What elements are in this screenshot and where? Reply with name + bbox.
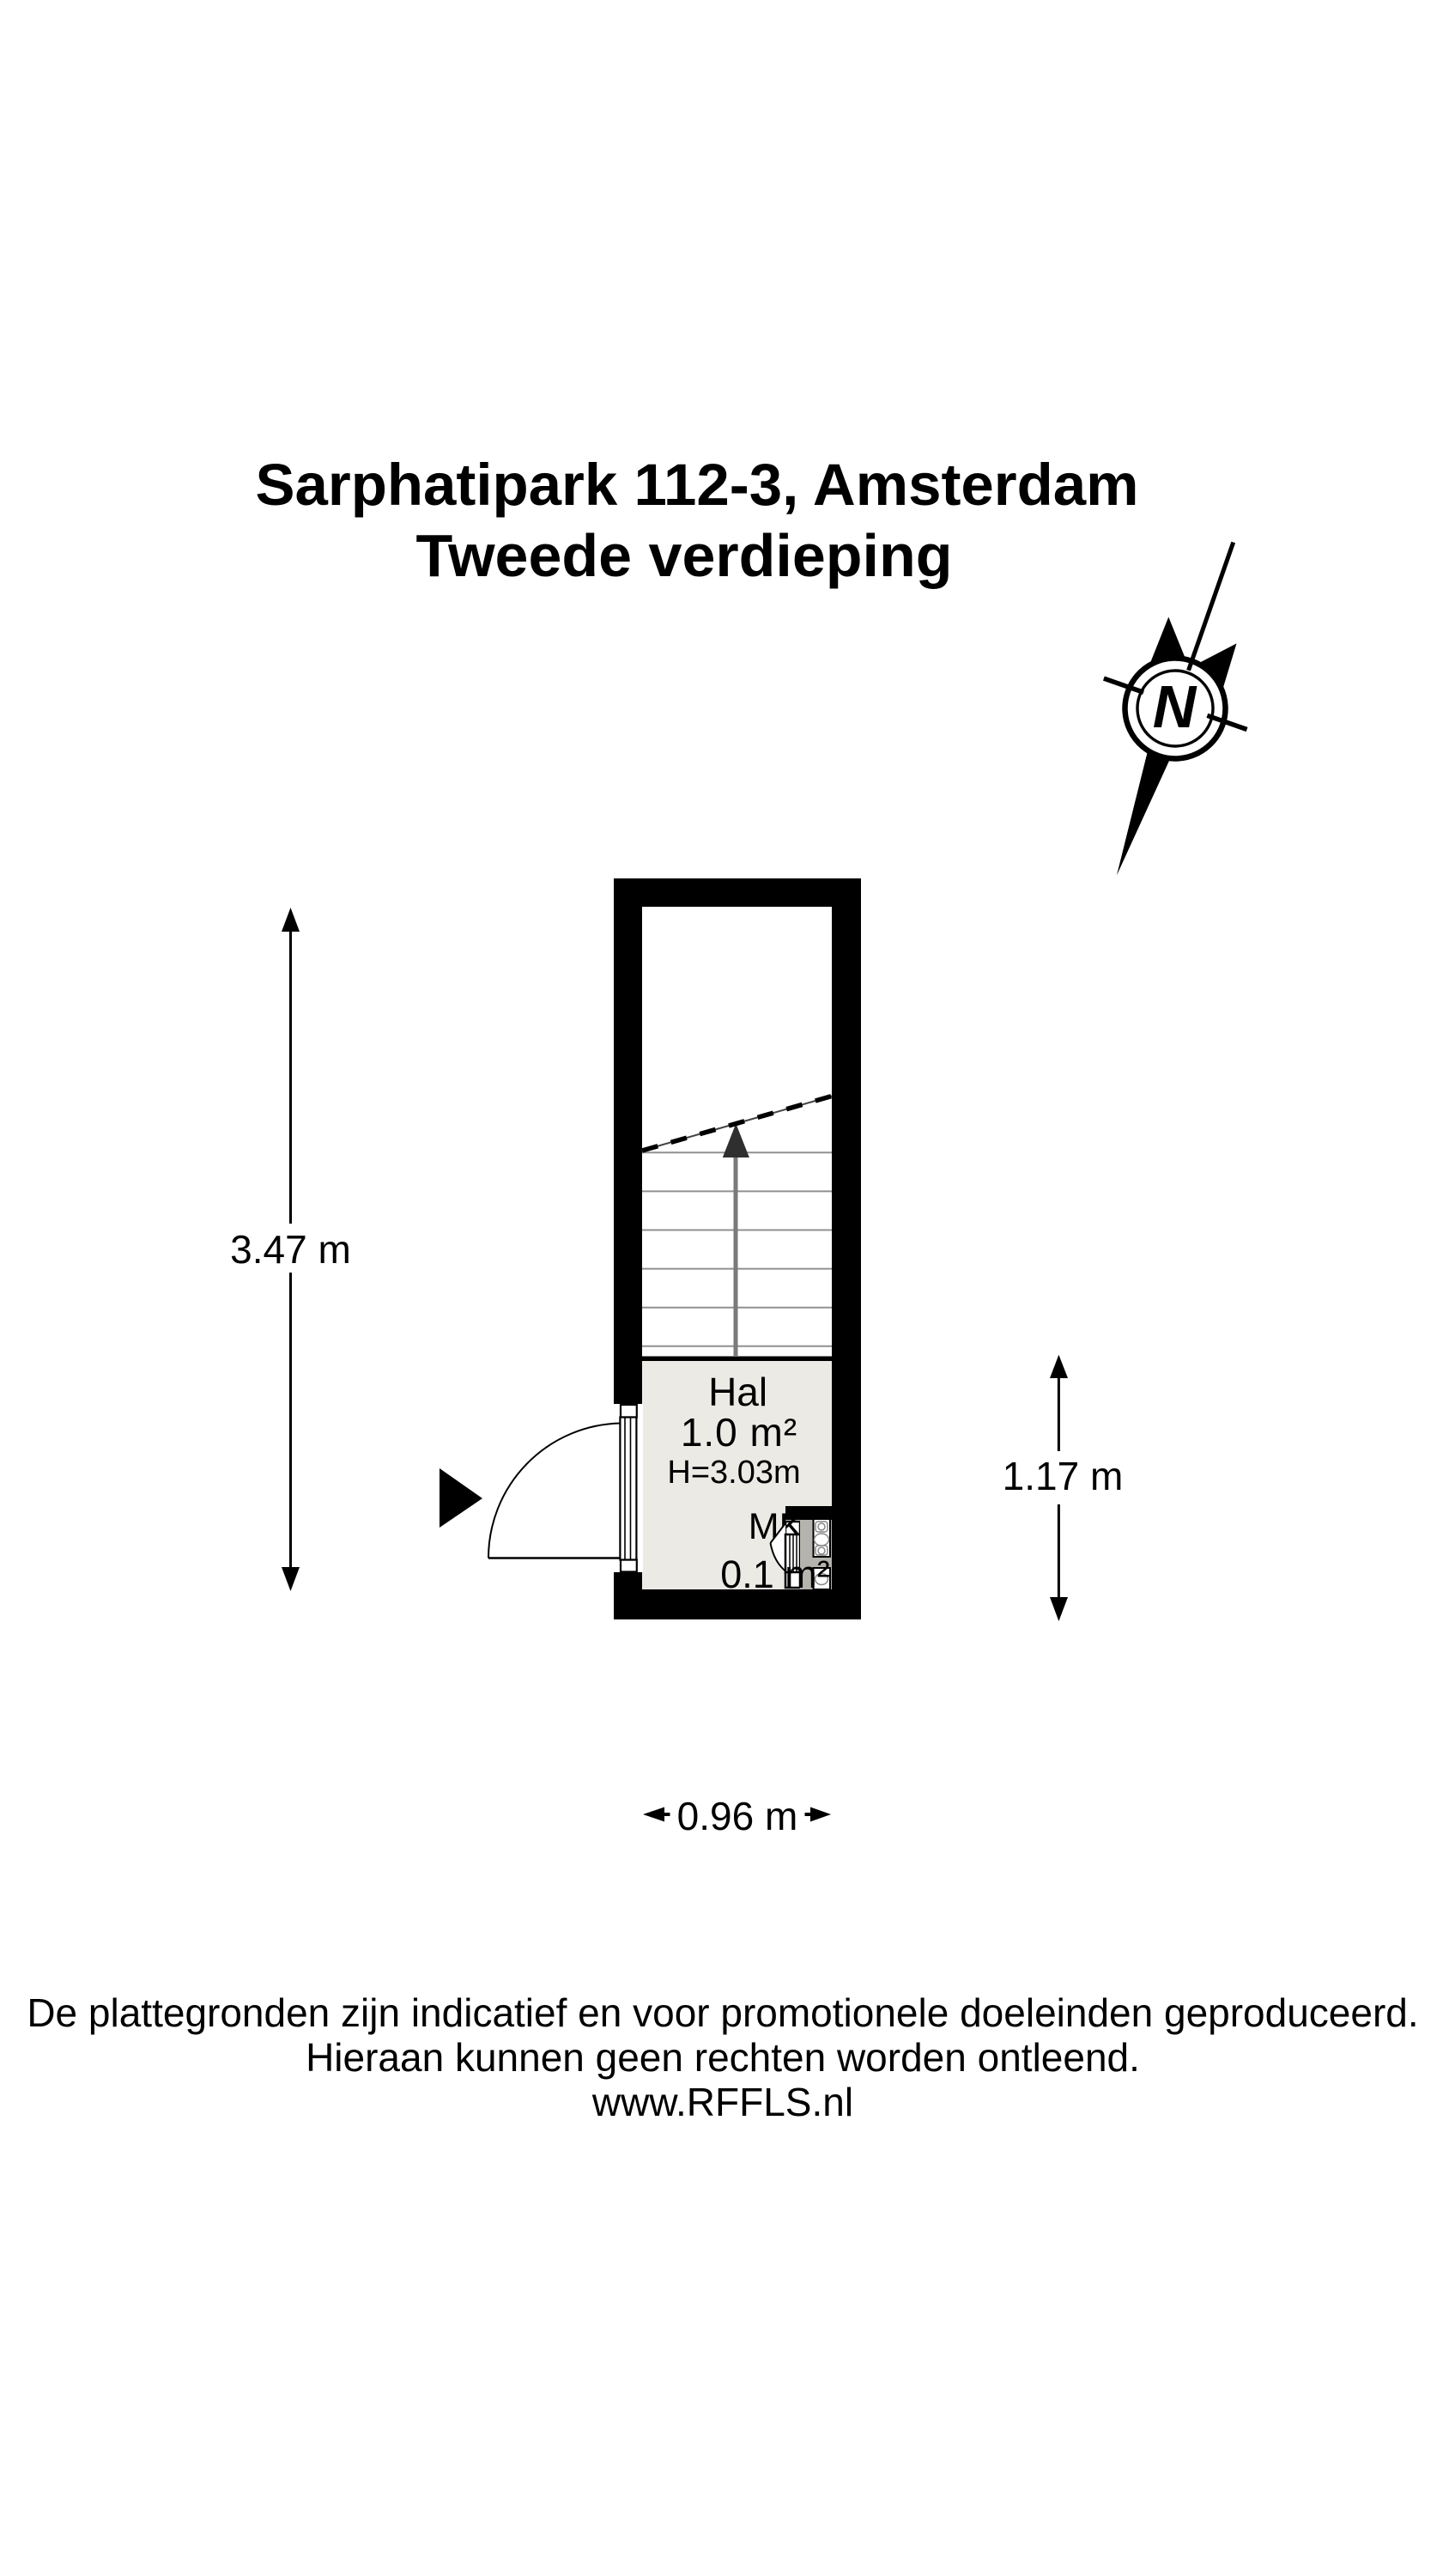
- svg-text:1.17 m: 1.17 m: [1003, 1454, 1124, 1498]
- svg-text:0.1 m²: 0.1 m²: [720, 1552, 830, 1596]
- svg-text:Hal: Hal: [708, 1370, 767, 1414]
- svg-text:Hieraan kunnen geen rechten wo: Hieraan kunnen geen rechten worden ontle…: [306, 2035, 1140, 2080]
- svg-text:Sarphatipark 112-3, Amsterdam: Sarphatipark 112-3, Amsterdam: [255, 452, 1138, 518]
- svg-text:H=3.03m: H=3.03m: [667, 1455, 800, 1491]
- svg-text:N: N: [1153, 673, 1197, 740]
- svg-text:3.47 m: 3.47 m: [230, 1227, 351, 1272]
- svg-text:0.96 m: 0.96 m: [677, 1794, 798, 1838]
- svg-text:1.0 m²: 1.0 m²: [681, 1410, 797, 1455]
- svg-text:www.RFFLS.nl: www.RFFLS.nl: [591, 2080, 853, 2124]
- svg-text:Tweede verdieping: Tweede verdieping: [416, 522, 953, 589]
- svg-text:De plattegronden zijn indicati: De plattegronden zijn indicatief en voor…: [27, 1990, 1418, 2035]
